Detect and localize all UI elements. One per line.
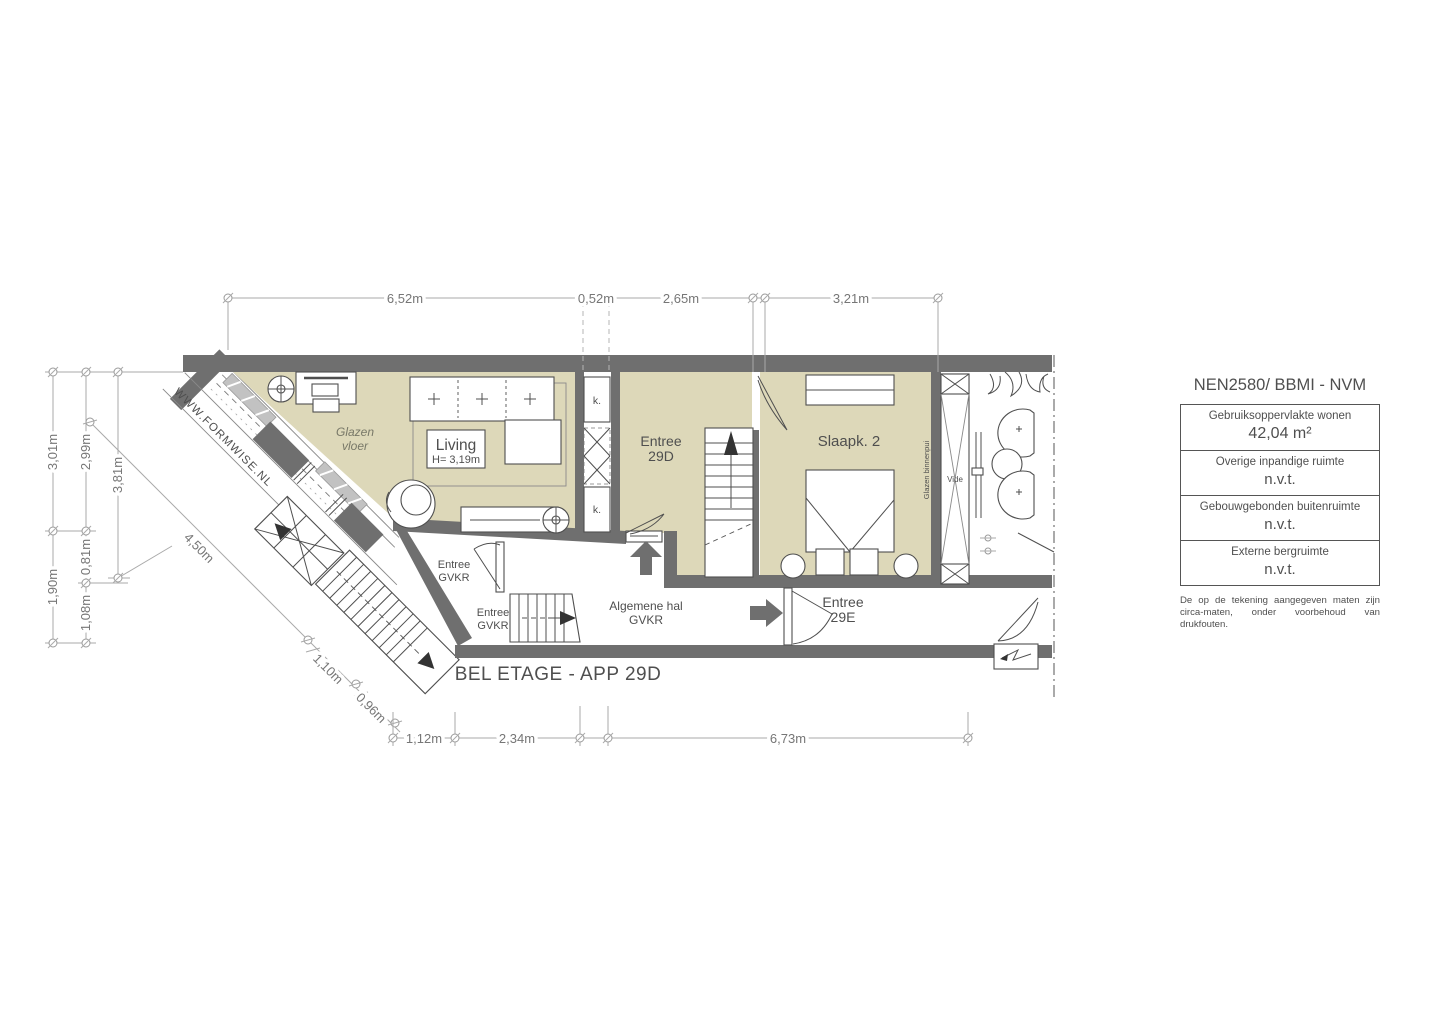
staircase-29d bbox=[705, 428, 753, 577]
table-row: Externe bergruimte n.v.t. bbox=[1181, 540, 1379, 585]
algemene-hal-label-2: GVKR bbox=[629, 613, 663, 627]
row-label: Gebruiksoppervlakte wonen bbox=[1183, 410, 1377, 422]
glazen-binnenpui-label: Glazen binnenpui bbox=[922, 440, 931, 499]
panel-disclaimer: De op de tekening aangegeven maten zijn … bbox=[1180, 595, 1380, 631]
panel-title: NEN2580/ BBMI - NVM bbox=[1180, 376, 1380, 395]
dim-bottom-1: 2,34m bbox=[499, 731, 535, 746]
dim-left-5: 1,08m bbox=[78, 595, 93, 631]
plan-title: BEL ETAGE - APP 29D bbox=[455, 664, 662, 685]
dim-left-1: 2,99m bbox=[78, 434, 93, 470]
entree-29d-label-1: Entree bbox=[640, 433, 681, 449]
row-value: n.v.t. bbox=[1183, 516, 1377, 533]
entree-29e-label-2: 29E bbox=[831, 609, 856, 625]
entrance-arrow-29e bbox=[750, 599, 783, 627]
area-table: Gebruiksoppervlakte wonen 42,04 m² Overi… bbox=[1180, 404, 1380, 586]
fan-wheel bbox=[543, 507, 569, 533]
balcony-step-door bbox=[994, 598, 1038, 669]
dim-bottom-0: 1,12m bbox=[406, 731, 442, 746]
office-chair bbox=[268, 376, 294, 402]
entree-29e-label-1: Entree bbox=[822, 594, 863, 610]
row-label: Gebouwgebonden buitenruimte bbox=[1183, 501, 1377, 513]
slaapkamer-label: Slaapk. 2 bbox=[818, 433, 881, 450]
row-value: n.v.t. bbox=[1183, 561, 1377, 578]
dim-bottom-2: 6,73m bbox=[770, 731, 806, 746]
nightstand bbox=[894, 554, 918, 578]
algemene-hal-label-1: Algemene hal bbox=[609, 599, 682, 613]
entree-gvkr-1-label-2: GVKR bbox=[438, 572, 469, 584]
nightstand bbox=[781, 554, 805, 578]
dim-diag-2: 0,96m bbox=[353, 690, 389, 726]
dim-left-3: 1,90m bbox=[45, 569, 60, 605]
chaise bbox=[505, 420, 561, 464]
dim-top-1: 0,52m bbox=[578, 291, 614, 306]
dim-top-3: 3,21m bbox=[833, 291, 869, 306]
table-row: Gebouwgebonden buitenruimte n.v.t. bbox=[1181, 495, 1379, 540]
gvkr-stair bbox=[510, 594, 580, 642]
living-height-label: H= 3,19m bbox=[432, 454, 480, 466]
closet-label-bottom: k. bbox=[593, 504, 601, 516]
table-row: Overige inpandige ruimte n.v.t. bbox=[1181, 450, 1379, 495]
glass-door bbox=[972, 432, 983, 518]
bed-stool bbox=[850, 549, 878, 575]
row-label: Externe bergruimte bbox=[1183, 546, 1377, 558]
nen2580-panel: NEN2580/ BBMI - NVM Gebruiksoppervlakte … bbox=[1180, 376, 1380, 631]
living-label: Living bbox=[436, 437, 477, 454]
dim-top-2: 2,65m bbox=[663, 291, 699, 306]
dim-diag-0: 4,50m bbox=[181, 530, 217, 566]
bed bbox=[806, 470, 894, 552]
dim-top-0: 6,52m bbox=[387, 291, 423, 306]
table-row: Gebruiksoppervlakte wonen 42,04 m² bbox=[1181, 405, 1379, 450]
entree-gvkr-2-label-2: GVKR bbox=[477, 620, 508, 632]
dim-left-0: 3,01m bbox=[45, 434, 60, 470]
north-wall bbox=[183, 355, 1052, 372]
row-label: Overige inpandige ruimte bbox=[1183, 456, 1377, 468]
glazen-vloer-label-1: Glazen bbox=[336, 425, 374, 439]
entree-gvkr-1-label-1: Entree bbox=[438, 559, 470, 571]
entrance-arrow-29d bbox=[630, 541, 662, 575]
plant bbox=[988, 372, 1050, 396]
dim-left-4: 0,81m bbox=[78, 539, 93, 575]
dim-diag-1: 1,10m bbox=[310, 651, 346, 687]
shaft-symbol bbox=[584, 428, 610, 484]
bed-stool bbox=[816, 549, 844, 575]
entree-29d-label-2: 29D bbox=[648, 448, 674, 464]
row-value: 42,04 m² bbox=[1183, 425, 1377, 443]
round-chair bbox=[386, 480, 435, 528]
vide-label: Vide bbox=[947, 475, 963, 484]
gvkr-door bbox=[474, 542, 504, 592]
entree-gvkr-2-label-1: Entree bbox=[477, 607, 509, 619]
glazen-vloer-label-2: vloer bbox=[342, 439, 369, 453]
row-value: n.v.t. bbox=[1183, 471, 1377, 488]
closet-label-top: k. bbox=[593, 395, 601, 407]
floorplan-page: WWW.FORMWISE.NL bbox=[0, 0, 1440, 1017]
south-wall bbox=[455, 645, 1052, 658]
dim-left-2: 3,81m bbox=[110, 457, 125, 493]
